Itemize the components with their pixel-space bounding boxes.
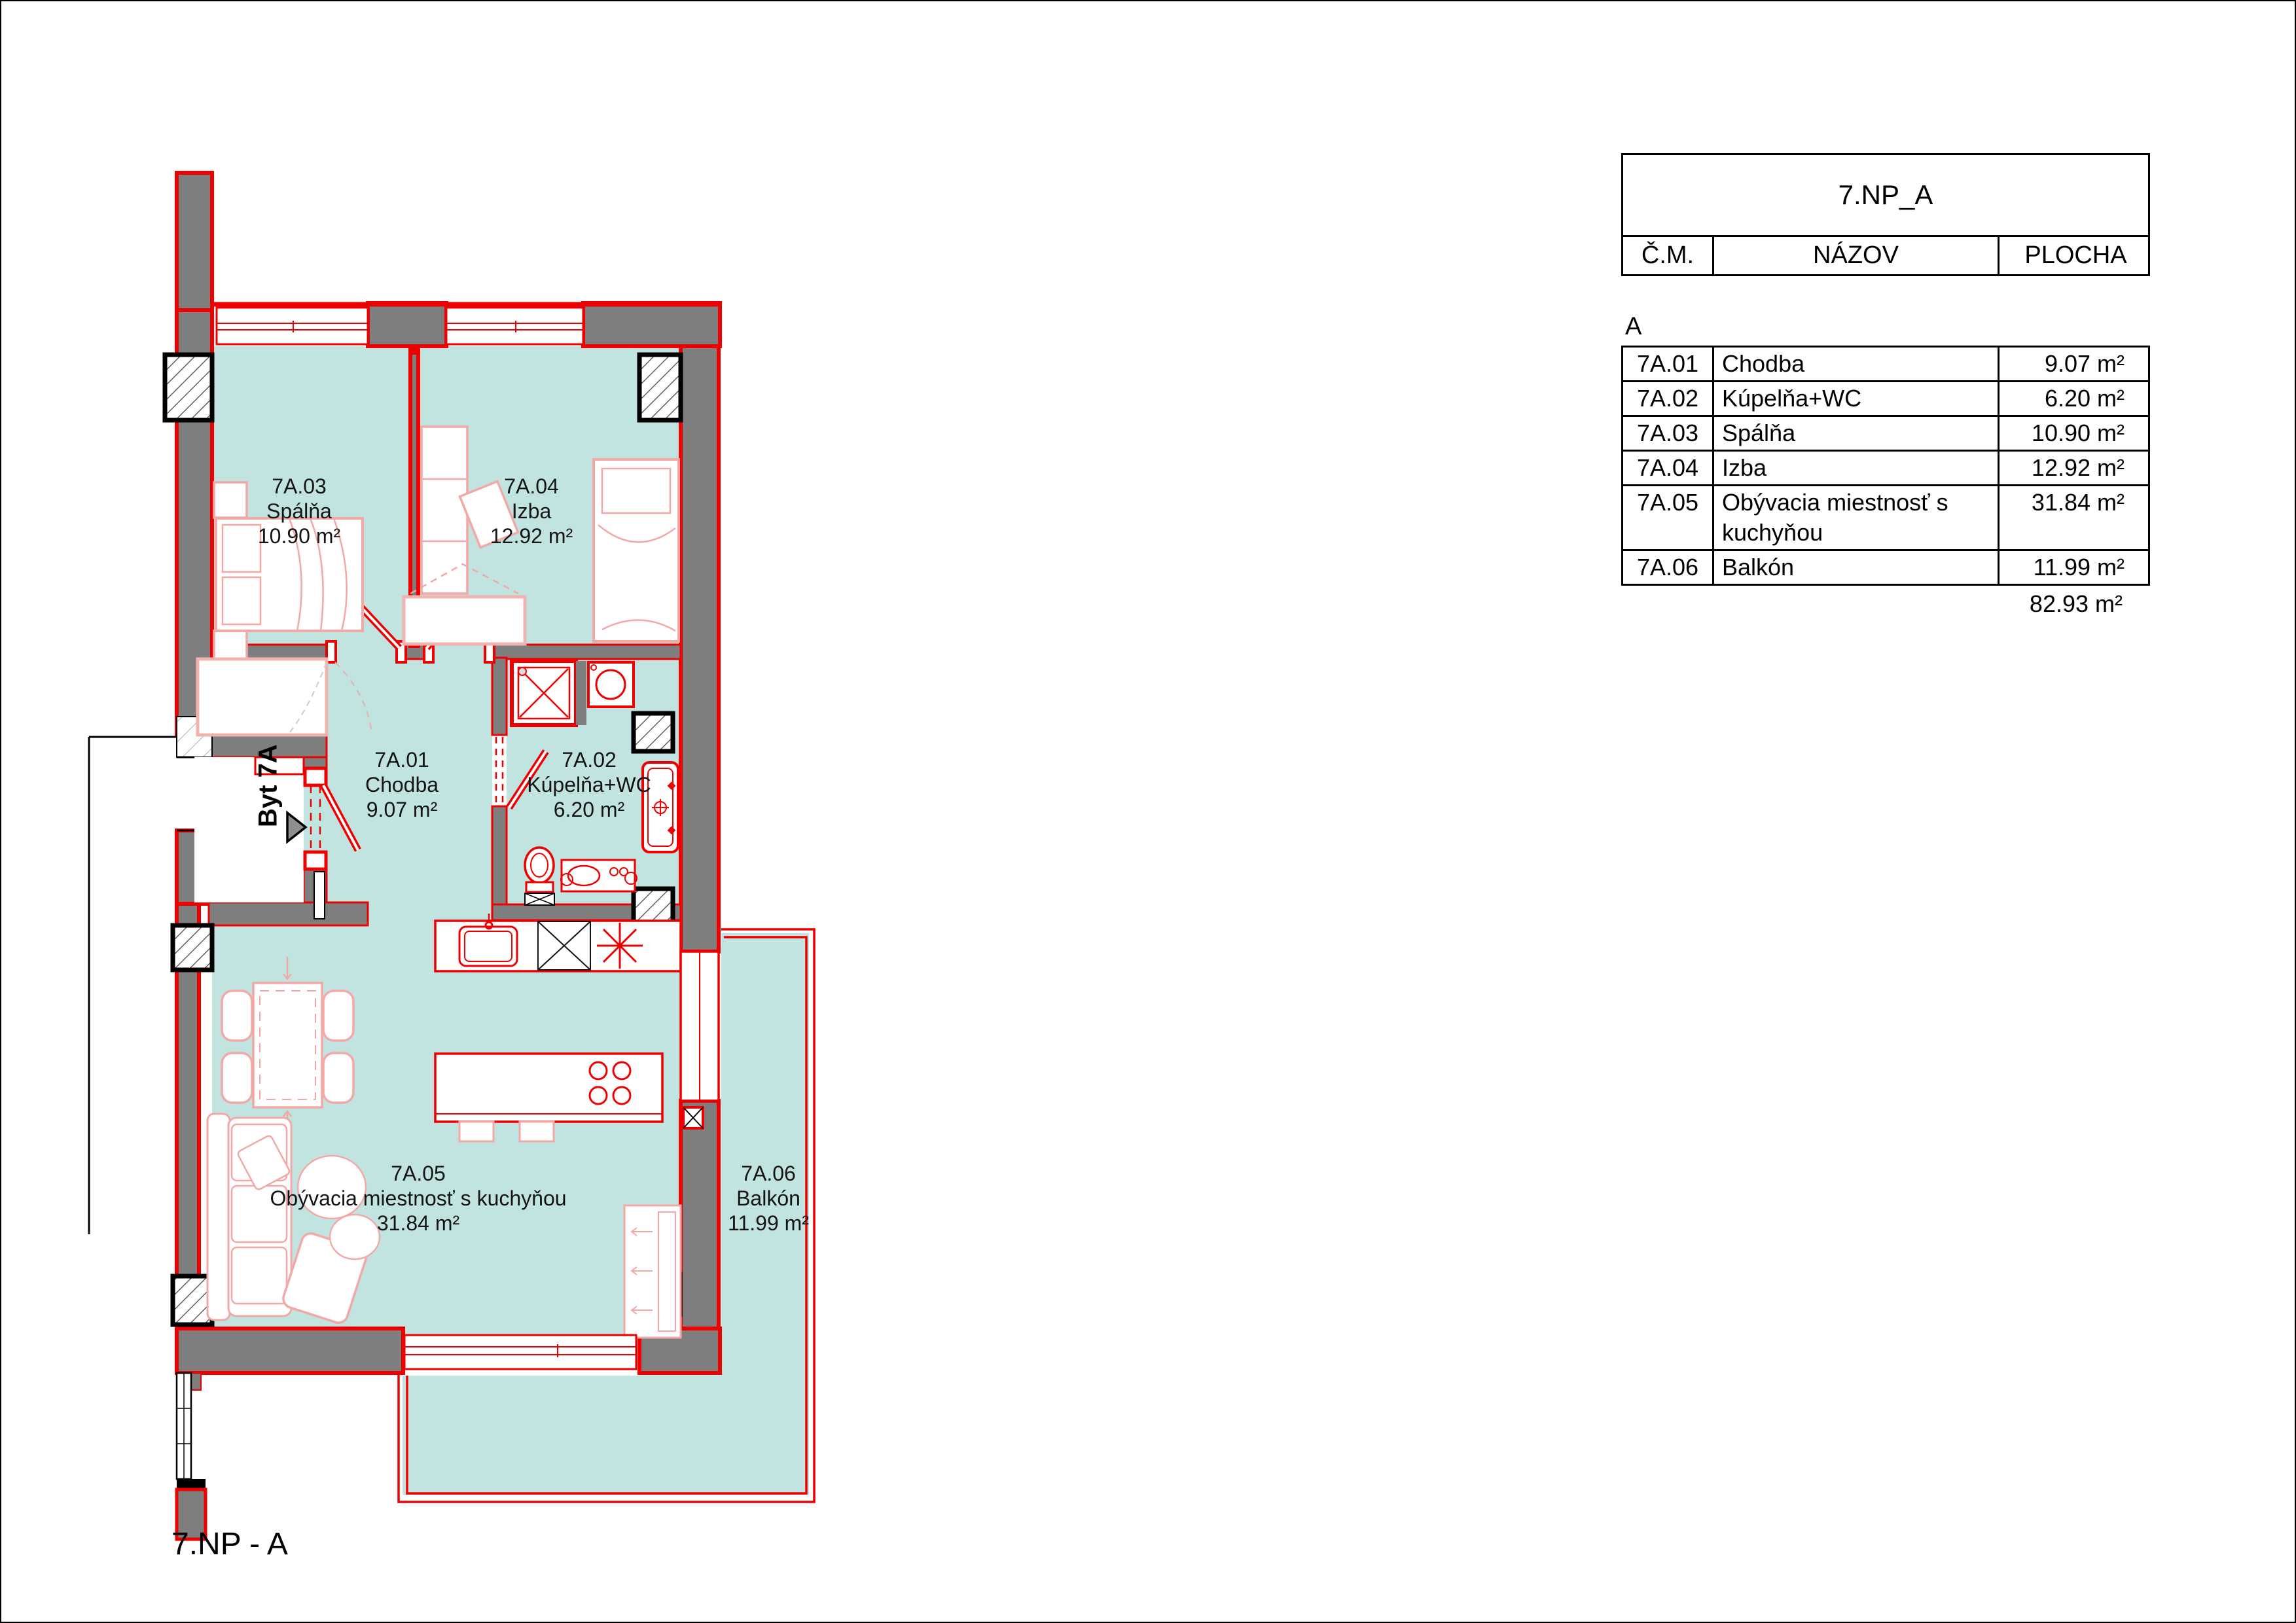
tv-sideboard [624, 1205, 681, 1338]
pillow [602, 469, 670, 513]
island-stool [520, 1122, 554, 1141]
col-header-nazov: NÁZOV [1714, 237, 2000, 274]
hall-wardrobe [198, 659, 327, 735]
desk [422, 427, 467, 594]
label-izba: 7A.04Izba12.92 m² [490, 474, 573, 548]
legend-header: Č.M. NÁZOV PLOCHA [1621, 237, 2150, 276]
legend-table: 7.NP_A Č.M. NÁZOV PLOCHA A 7A.01 Chodba … [1621, 153, 2150, 622]
balcony-sliding-window [404, 1335, 636, 1369]
legend-title: 7.NP_A [1621, 153, 2150, 237]
floor-title: 7.NP - A [171, 1526, 288, 1562]
floorplan-sheet: 7A.03Spálňa10.90 m² 7A.04Izba12.92 m² 7A… [0, 0, 2296, 1623]
toilet [525, 847, 554, 892]
label-kupelna: 7A.02Kúpelňa+WC6.20 m² [527, 747, 651, 822]
nightstand-1 [214, 482, 247, 518]
entry-shaft-door [314, 872, 325, 919]
vanity-sink [561, 860, 637, 891]
chair [323, 991, 353, 1041]
shaft-bedroom1 [165, 355, 212, 420]
window-bedroom2 [446, 308, 583, 344]
total-area: 82.93 m² [1621, 586, 2150, 622]
section-label: A [1625, 313, 2150, 340]
window-bedroom1 [217, 308, 368, 344]
table-row: 7A.04 Izba 12.92 m² [1623, 452, 2148, 486]
washing-machine [588, 662, 634, 707]
label-balkon: 7A.06Balkón11.99 m² [728, 1161, 809, 1236]
wall-outlet-box [683, 1107, 703, 1128]
label-spalna: 7A.03Spálňa10.90 m² [258, 474, 340, 548]
pillow [223, 525, 260, 572]
pillow [223, 577, 260, 624]
wardrobe [404, 597, 525, 644]
table-row: 7A.06 Balkón 11.99 m² [1623, 551, 2148, 584]
chair [222, 991, 252, 1041]
shaft-left-bottom [173, 1276, 212, 1325]
wall-right-lower [681, 1101, 719, 1336]
col-header-cm: Č.M. [1623, 237, 1714, 274]
wall-living-bottom [177, 1329, 403, 1373]
chair [222, 1053, 252, 1103]
dishwasher [538, 921, 590, 970]
table-row: 7A.01 Chodba 9.07 m² [1623, 348, 2148, 382]
legend-rows: 7A.01 Chodba 9.07 m² 7A.02 Kúpelňa+WC 6.… [1621, 346, 2150, 586]
entry-vestibule [177, 757, 326, 919]
wall-bath-left-b [492, 806, 507, 906]
shaft-left-mid [173, 925, 212, 970]
dining-table [253, 983, 322, 1107]
furniture-chodba [198, 659, 327, 735]
wall-topleft-column [177, 173, 212, 310]
wall-window-pier [368, 303, 446, 346]
stove-symbol [597, 923, 643, 969]
col-header-plocha: PLOCHA [2000, 237, 2152, 274]
wall-right-upper [681, 346, 719, 952]
table-row: 7A.05 Obývacia miestnosť s kuchyňou 31.8… [1623, 486, 2148, 551]
table-row: 7A.03 Spálňa 10.90 m² [1623, 417, 2148, 452]
wall-bath-left-a [492, 658, 507, 735]
table-row: 7A.02 Kúpelňa+WC 6.20 m² [1623, 382, 2148, 417]
shaft-bedroom2 [639, 355, 681, 420]
shaft-bathroom [634, 713, 673, 751]
stair-window-strip [177, 1373, 191, 1479]
label-chodba: 7A.01Chodba9.07 m² [365, 747, 439, 822]
label-obyvacia: 7A.05Obývacia miestnosť s kuchyňou31.84 … [270, 1161, 566, 1236]
wall-entry-bottom [209, 902, 368, 925]
wall-top-right [583, 303, 720, 346]
chair [323, 1053, 353, 1103]
shower [512, 661, 576, 725]
island-stool [459, 1122, 493, 1141]
